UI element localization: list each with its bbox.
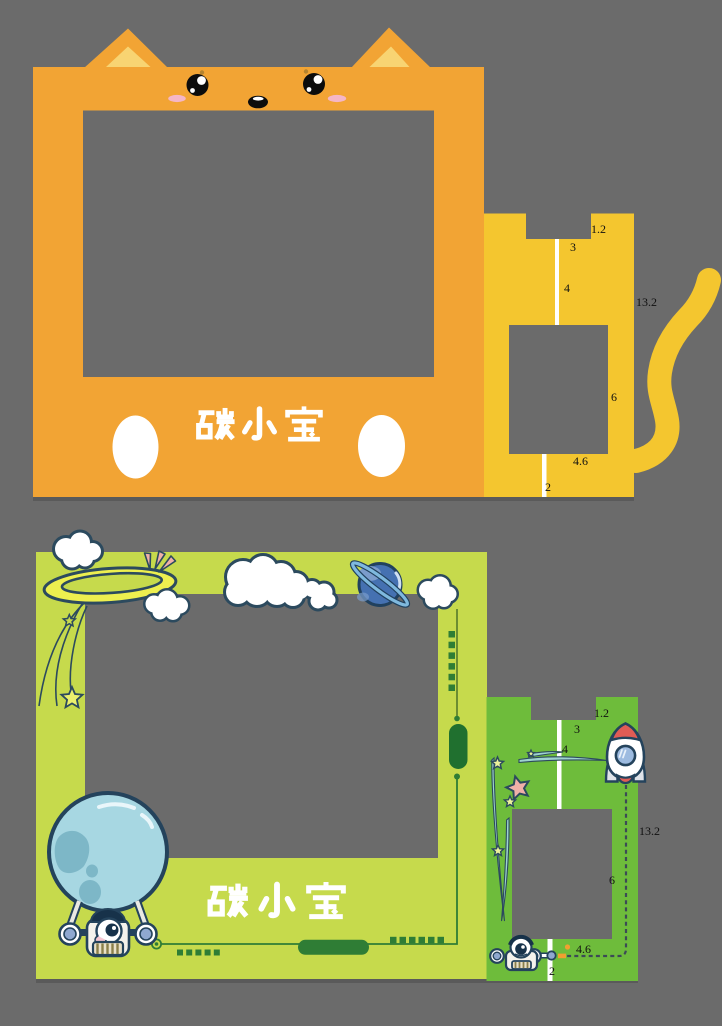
svg-text:6: 6 [611, 390, 617, 404]
svg-text:2: 2 [549, 964, 555, 978]
svg-text:4: 4 [564, 281, 570, 295]
svg-text:3: 3 [574, 722, 580, 736]
svg-text:3: 3 [570, 240, 576, 254]
svg-text:2: 2 [545, 480, 551, 494]
svg-text:13.2: 13.2 [636, 295, 657, 309]
svg-text:4.6: 4.6 [573, 454, 588, 468]
svg-text:1.2: 1.2 [591, 222, 606, 236]
svg-text:4: 4 [562, 742, 568, 756]
svg-text:13.2: 13.2 [639, 824, 660, 838]
svg-text:6: 6 [609, 873, 615, 887]
svg-text:4.6: 4.6 [576, 942, 591, 956]
svg-text:1.2: 1.2 [594, 706, 609, 720]
